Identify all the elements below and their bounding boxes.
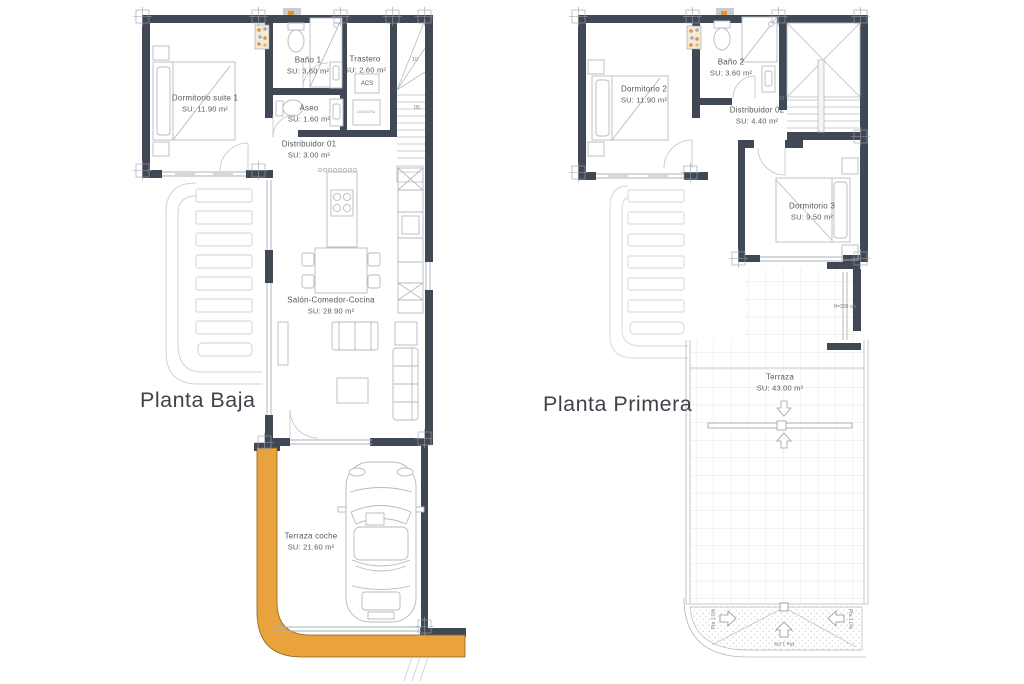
room-label-trastero: Trastero SU: 2.60 m² [344,55,386,76]
floorplan-drawing [0,0,1024,684]
ramp-below [610,186,688,358]
car-icon [338,462,424,622]
stair-number-10: 10 [412,57,418,63]
stairs [787,23,860,132]
room-label-dormitorio-suite-1: Dormitorio suite 1 SU: 11.90 m² [172,94,238,115]
living-furniture [278,168,423,420]
washer-label: LAVADORA [357,110,376,114]
room-label-dormitorio-3: Dormitorio 3 SU: 9.50 m² [789,202,835,223]
plan-title-planta-baja: Planta Baja [140,388,255,413]
slope-label-left: Pte 1.0% [711,609,717,629]
slope-label-center: Pte 1.0% [774,640,794,646]
room-label-salon-comedor-cocina: Salón-Comedor-Cocina SU: 28.90 m² [287,296,375,317]
fixtures [714,17,777,92]
room-label-distribuidor-02: Distribuidor 02 SU: 4.40 m² [730,106,785,127]
mosaic-tile [255,25,269,49]
stair-number-01: 01 [779,96,785,102]
vent-mark [288,11,294,15]
mosaic-tile [687,26,701,49]
room-label-bano-2: Baño 2 SU: 3.60 m² [710,58,752,79]
floorplan-sheet: Dormitorio suite 1 SU: 11.90 m² Baño 1 S… [0,0,1024,684]
plan-title-planta-primera: Planta Primera [543,392,692,417]
height-note: H=230 cm [834,304,857,310]
room-label-distribuidor-01: Distribuidor 01 SU: 3.00 m² [282,140,337,161]
room-label-aseo: Aseo SU: 1.60 m² [288,104,330,125]
room-label-bano-1: Baño 1 SU: 3.60 m² [287,56,329,77]
bedroom2-furniture [588,60,668,156]
room-label-dormitorio-2: Dormitorio 2 SU: 11.90 m² [621,85,667,106]
gate-lines [404,657,428,681]
stairs [397,20,425,182]
room-label-terraza-coche: Terraza coche SU: 21.60 m² [285,532,338,553]
vent-mark [721,11,727,15]
room-label-terraza: Terraza SU: 43.00 m² [757,373,804,394]
slope-label-right: Pte 1.0% [847,609,853,629]
acs-label: ACS [361,81,373,87]
driveway-ramp [166,183,262,384]
planta-primera-drawing [569,7,870,657]
stair-number-05: 05 [414,105,420,111]
